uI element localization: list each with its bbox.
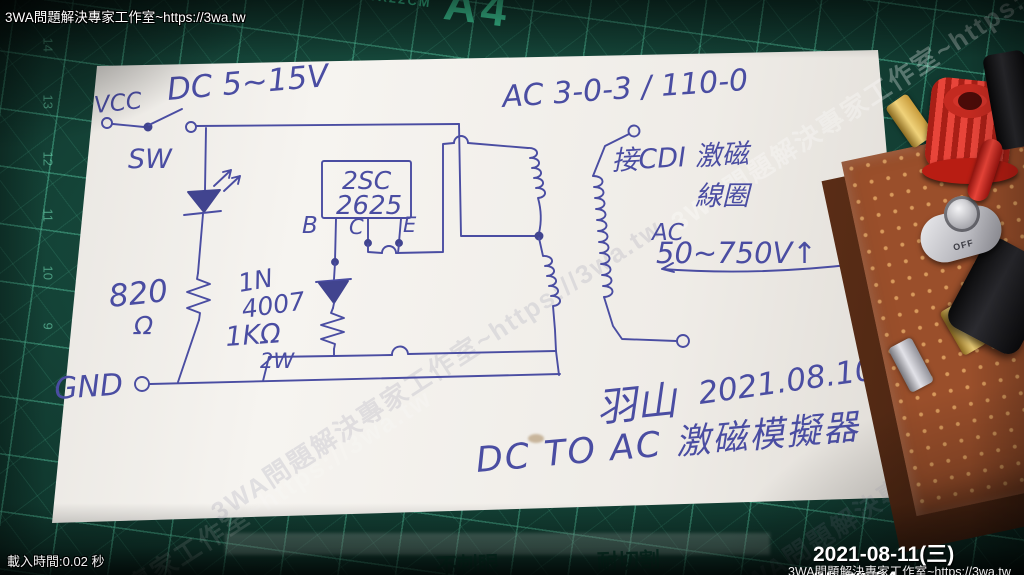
watermark-bottom-right: 3WA問題解決專家工作室~https://3wa.tw	[788, 561, 1011, 575]
ruler-number: 14	[0, 38, 56, 64]
ruler-number: 12	[0, 152, 56, 178]
mat-ruler: 14 13 12 11 10 9	[14, 22, 40, 364]
watermark-top-left: 3WA問題解決專家工作室~https://3wa.tw	[5, 6, 246, 26]
ruler-number: 10	[0, 266, 56, 292]
ruler-number: 13	[0, 95, 56, 121]
ruler-number: 11	[0, 209, 56, 235]
photo-scene: 30X22CM A4 14 13 12 11 10 9 不刺眼 耐切割 3WA問…	[0, 0, 1024, 575]
paper-stain	[528, 434, 544, 443]
mat-slogan-left: 不刺眼	[435, 548, 499, 575]
ruler-number: 9	[0, 323, 56, 349]
mat-slogan-right: 耐切割	[596, 544, 660, 575]
load-time-label: 載入時間:0.02 秒	[7, 551, 105, 570]
toggle-switch-bushing	[944, 196, 980, 232]
red-binding-post-hole	[958, 92, 982, 110]
